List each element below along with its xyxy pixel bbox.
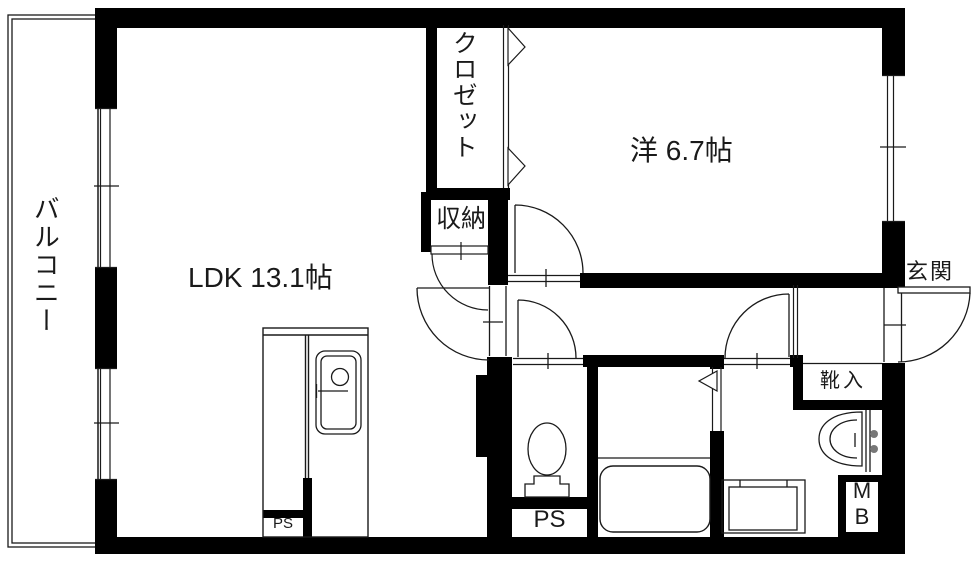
entrance-step-line	[794, 285, 798, 358]
ldk-label: LDK 13.1帖	[188, 263, 333, 292]
bathroom-folding-door	[699, 367, 721, 431]
western-room-door-swing	[508, 205, 583, 287]
meter-box-letter-m: M	[846, 478, 878, 504]
meter-box-letter-b: B	[846, 504, 878, 530]
shoe-cabinet-label: 靴入	[803, 371, 883, 392]
storage-label: 収納	[432, 206, 490, 232]
pipe-space-kitchen-label: PS	[262, 516, 304, 532]
washroom-door-swing	[724, 294, 790, 369]
closet-folding-door	[504, 25, 526, 188]
kitchen-sink	[316, 351, 361, 434]
washing-machine-pan	[722, 480, 805, 533]
washbasin	[819, 410, 878, 472]
toilet-door-swing	[513, 300, 583, 369]
balcony-label: バルコニー	[31, 195, 58, 365]
toilet-fixture	[525, 423, 569, 497]
bathtub	[600, 466, 710, 532]
ldk-door-swing	[417, 286, 506, 360]
outlet-dot	[870, 430, 878, 438]
window-western-room	[880, 75, 906, 222]
closet-label: クロゼット	[450, 30, 476, 190]
entrance-label: 玄関	[906, 260, 954, 283]
meter-box-label: M B	[846, 478, 878, 530]
entrance-door-swing	[884, 287, 970, 362]
floorplan-canvas	[0, 0, 978, 561]
floorplan: バルコニー LDK 13.1帖 クロゼット 収納 洋 6.7帖 玄関 靴入 PS…	[0, 0, 978, 561]
storage-door-swing	[431, 242, 488, 310]
western-room-label: 洋 6.7帖	[630, 136, 733, 165]
outlet-dot	[870, 445, 878, 453]
pipe-space-toilet-label: PS	[512, 507, 587, 532]
